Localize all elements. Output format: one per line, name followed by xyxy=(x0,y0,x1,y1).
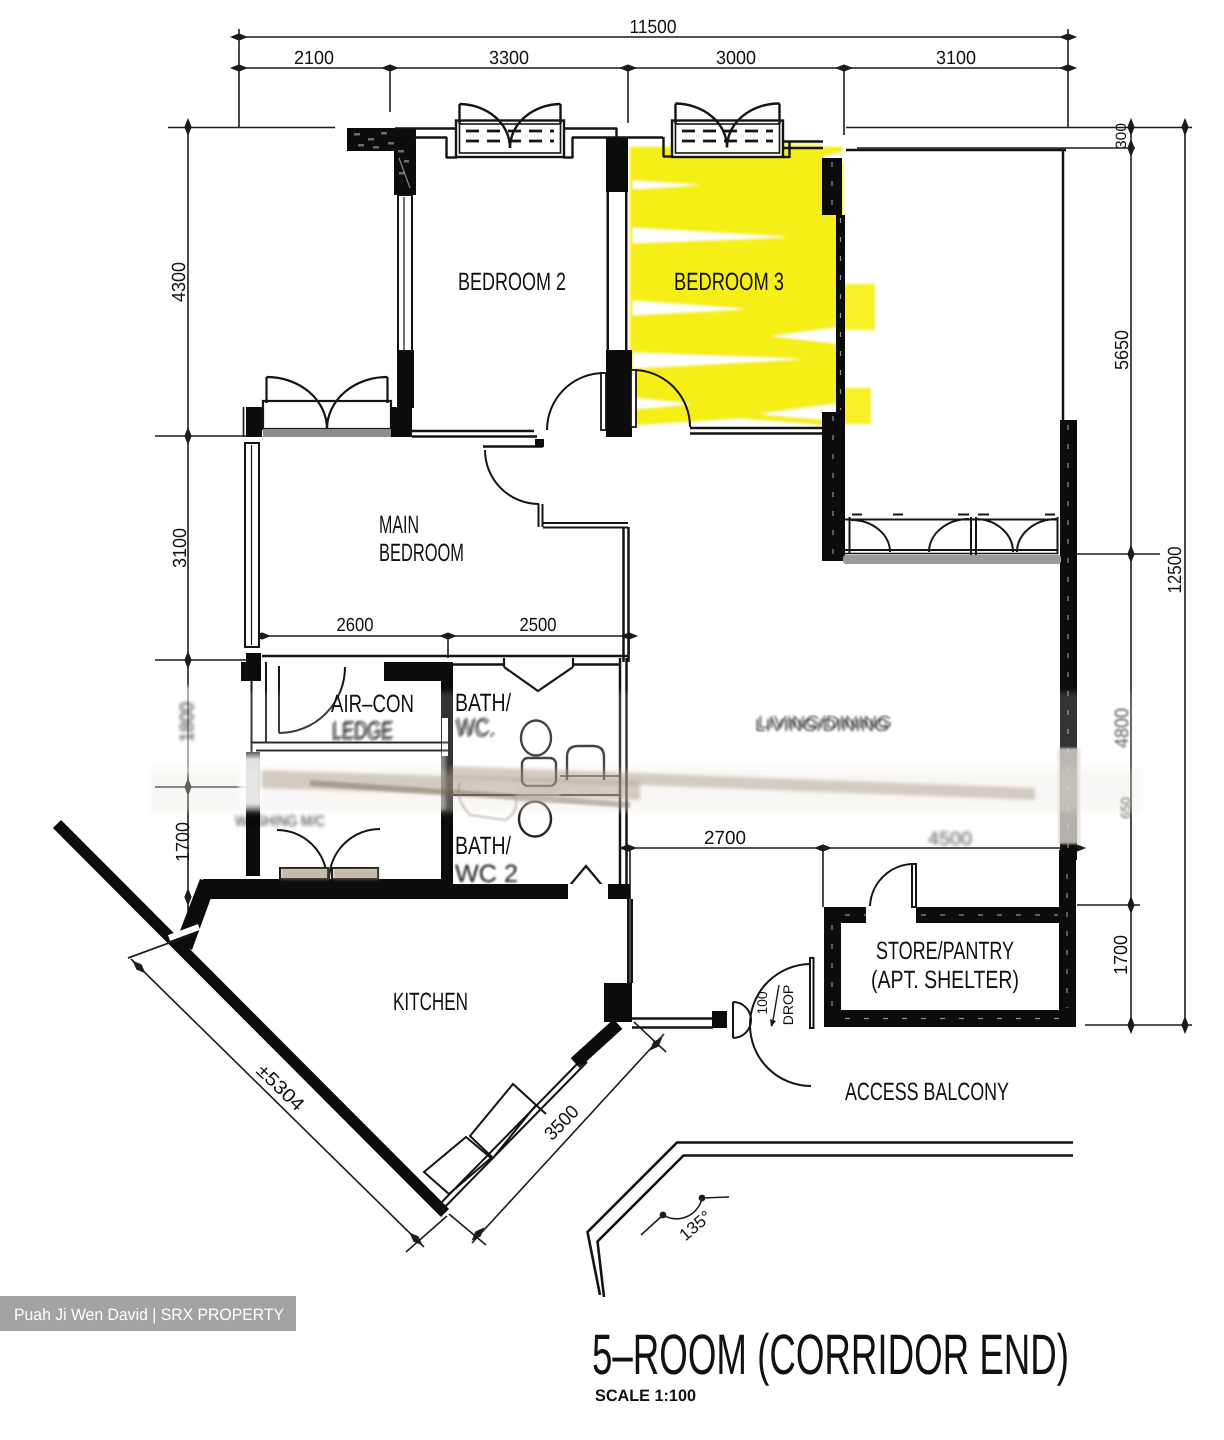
svg-text:STORE/PANTRY: STORE/PANTRY xyxy=(876,937,1014,965)
svg-text:LIVING/DINING: LIVING/DINING xyxy=(758,712,892,732)
svg-text:3300: 3300 xyxy=(489,48,529,69)
svg-text:5–ROOM (CORRIDOR END): 5–ROOM (CORRIDOR END) xyxy=(592,1323,1069,1387)
svg-text:3100: 3100 xyxy=(170,528,191,568)
svg-text:300: 300 xyxy=(1113,123,1130,149)
svg-text:MAIN: MAIN xyxy=(379,511,419,539)
svg-text:BATH/: BATH/ xyxy=(455,832,511,860)
svg-text:KITCHEN: KITCHEN xyxy=(393,988,468,1016)
svg-text:2600: 2600 xyxy=(337,615,374,636)
svg-text:4500: 4500 xyxy=(928,829,972,850)
svg-text:3100: 3100 xyxy=(936,48,976,69)
svg-text:WASHING M/C: WASHING M/C xyxy=(235,813,325,830)
svg-text:ACCESS BALCONY: ACCESS BALCONY xyxy=(845,1078,1009,1106)
svg-text:2100: 2100 xyxy=(294,48,334,69)
svg-text:2700: 2700 xyxy=(704,828,746,849)
svg-text:12500: 12500 xyxy=(1165,547,1186,594)
svg-text:(APT. SHELTER): (APT. SHELTER) xyxy=(871,966,1019,994)
svg-text:WC 2: WC 2 xyxy=(455,860,518,888)
svg-text:1700: 1700 xyxy=(1111,935,1132,975)
svg-text:4300: 4300 xyxy=(169,262,190,302)
svg-text:LEDGE: LEDGE xyxy=(333,716,394,744)
svg-text:4800: 4800 xyxy=(1112,708,1133,748)
svg-text:BEDROOM: BEDROOM xyxy=(379,539,464,567)
svg-text:1700: 1700 xyxy=(173,822,194,862)
svg-text:650: 650 xyxy=(1118,797,1133,819)
svg-text:DROP: DROP xyxy=(780,985,796,1025)
svg-text:2500: 2500 xyxy=(520,615,557,636)
svg-text:AIR–CON: AIR–CON xyxy=(331,690,414,718)
svg-text:BEDROOM 2: BEDROOM 2 xyxy=(458,268,566,296)
svg-text:SCALE 1:100: SCALE 1:100 xyxy=(595,1387,696,1405)
svg-text:WC.: WC. xyxy=(457,713,496,741)
svg-text:Puah Ji Wen David | SRX PROPER: Puah Ji Wen David | SRX PROPERTY xyxy=(14,1306,284,1324)
svg-text:1800: 1800 xyxy=(177,702,198,742)
svg-text:BEDROOM 3: BEDROOM 3 xyxy=(674,268,784,296)
svg-text:5650: 5650 xyxy=(1112,330,1133,370)
svg-text:11500: 11500 xyxy=(630,17,677,38)
svg-text:100: 100 xyxy=(754,991,770,1015)
svg-text:3000: 3000 xyxy=(716,48,756,69)
